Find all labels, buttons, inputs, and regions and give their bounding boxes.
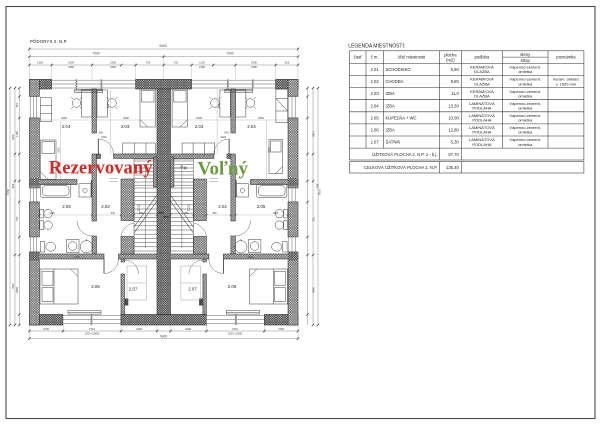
svg-text:časť: časť [354,55,363,60]
svg-text:omietka: omietka [518,81,533,86]
svg-text:2.06: 2.06 [91,284,100,289]
svg-text:2.04: 2.04 [371,103,380,108]
svg-text:12,80: 12,80 [448,128,459,133]
svg-text:2.06: 2.06 [228,284,237,289]
svg-text:2380: 2380 [110,65,116,69]
svg-text:500: 500 [217,104,220,109]
svg-text:Rezervovaný: Rezervovaný [49,158,153,179]
svg-text:3710: 3710 [89,327,95,331]
svg-text:9400: 9400 [160,334,167,338]
svg-text:900: 900 [163,215,168,219]
svg-text:67,70: 67,70 [448,152,459,157]
svg-text:3300: 3300 [123,116,129,120]
svg-text:PODLAHA: PODLAHA [472,118,491,123]
svg-text:poznámka: poznámka [556,55,576,60]
svg-text:950: 950 [16,102,19,107]
svg-text:3710: 3710 [232,327,238,331]
svg-text:2.07: 2.07 [188,287,197,292]
svg-text:1500: 1500 [267,147,270,153]
svg-text:450: 450 [111,212,116,215]
svg-text:3600: 3600 [12,134,15,140]
svg-text:2150: 2150 [278,327,284,331]
svg-text:omietka: omietka [518,106,533,111]
svg-text:1501: 1501 [248,256,254,259]
svg-text:3650: 3650 [311,287,315,293]
svg-text:Voľný: Voľný [198,159,249,180]
svg-text:2380: 2380 [68,65,74,69]
svg-text:2.01: 2.01 [371,67,380,72]
svg-text:PODLAHA: PODLAHA [472,142,491,147]
svg-text:2020: 2020 [101,136,107,139]
svg-text:5750: 5750 [318,189,322,195]
svg-text:950: 950 [11,183,15,188]
svg-text:1850: 1850 [61,116,67,120]
svg-text:2.03: 2.03 [195,124,204,129]
svg-text:DLAŽBA: DLAŽBA [474,81,490,86]
svg-text:omietka: omietka [518,69,533,74]
svg-text:PODLAHA: PODLAHA [472,106,491,111]
svg-text:2.02: 2.02 [101,204,110,209]
svg-text:700: 700 [146,61,151,65]
svg-text:11,0: 11,0 [451,91,460,96]
svg-text:2300: 2300 [136,327,142,331]
svg-text:omietka: omietka [518,130,533,135]
svg-text:13,30: 13,30 [448,103,459,108]
svg-text:2.06: 2.06 [371,128,380,133]
svg-text:ÚŽITKOVÁ PLOCHA 2. N.P. 1 - b.: ÚŽITKOVÁ PLOCHA 2. N.P. 1 - b.j. [372,152,437,157]
svg-text:3300: 3300 [196,116,202,120]
svg-text:5,50: 5,50 [451,67,460,72]
svg-text:1065: 1065 [273,212,279,215]
svg-text:v. 1500 mm: v. 1500 mm [556,81,577,86]
svg-text:2.02: 2.02 [371,79,380,84]
svg-text:2020: 2020 [221,136,227,139]
svg-text:950: 950 [139,212,144,215]
svg-text:2.03: 2.03 [371,91,380,96]
svg-text:3650: 3650 [15,287,19,293]
svg-text:IZBA: IZBA [386,128,396,133]
svg-text:2.05: 2.05 [257,204,266,209]
svg-text:2150: 2150 [43,327,49,331]
svg-text:omietka: omietka [518,118,533,123]
svg-text:9,80: 9,80 [451,79,460,84]
svg-text:1180: 1180 [311,131,315,137]
svg-text:2.04: 2.04 [247,124,256,129]
svg-text:750: 750 [311,217,315,222]
svg-text:1501 (1065): 1501 (1065) [85,332,100,336]
svg-text:135,40: 135,40 [446,165,459,170]
svg-text:2.01: 2.01 [137,205,141,212]
svg-text:1500: 1500 [58,147,61,153]
svg-text:450: 450 [212,212,217,215]
svg-text:950: 950 [184,212,189,215]
svg-text:účel miestnosti: účel miestnosti [398,55,426,60]
svg-text:PODLAHA: PODLAHA [472,130,491,135]
svg-text:DLAŽBA: DLAŽBA [474,69,490,74]
svg-text:2.07: 2.07 [129,287,138,292]
svg-text:7000: 7000 [226,52,233,56]
svg-text:7000: 7000 [92,52,99,56]
svg-text:podlaha: podlaha [474,55,490,60]
svg-text:1501: 1501 [74,256,80,259]
svg-text:2380: 2380 [251,65,257,69]
svg-text:CHODBA: CHODBA [386,79,404,84]
svg-text:2.01: 2.01 [186,205,190,212]
svg-text:1065: 1065 [49,212,55,215]
svg-text:DLAŽBA: DLAŽBA [474,93,490,98]
svg-text:5900: 5900 [12,283,15,289]
svg-text:900: 900 [99,130,104,134]
svg-text:2.04: 2.04 [62,124,71,129]
svg-text:2.07: 2.07 [371,140,380,145]
svg-text:(m2): (m2) [446,58,455,63]
svg-text:5,30: 5,30 [451,140,460,145]
svg-text:925: 925 [285,61,290,65]
svg-text:2300: 2300 [185,327,191,331]
svg-text:2.05: 2.05 [62,204,71,209]
svg-text:omietka: omietka [518,142,533,147]
svg-text:KÚPEĽŇA + WC: KÚPEĽŇA + WC [386,115,417,120]
svg-text:1501 (1065): 1501 (1065) [228,332,243,336]
svg-text:10,00: 10,00 [448,115,459,120]
svg-text:SCHODISKO: SCHODISKO [386,67,412,72]
svg-text:IZBA: IZBA [386,91,396,96]
svg-text:1300: 1300 [37,61,43,65]
svg-text:IZBA: IZBA [386,103,396,108]
svg-text:5750: 5750 [6,189,10,195]
svg-text:2300: 2300 [68,61,74,65]
svg-text:č.m.: č.m. [371,55,379,60]
svg-text:2180: 2180 [199,65,205,69]
svg-text:700: 700 [174,61,179,65]
svg-text:omietka: omietka [518,93,533,98]
svg-text:1850: 1850 [258,116,264,120]
svg-text:CELKOVÁ ÚŽITKOVÁ PLOCHA 2. N.P: CELKOVÁ ÚŽITKOVÁ PLOCHA 2. N.P. [364,165,437,170]
svg-text:ŠATNÍK: ŠATNÍK [386,140,401,145]
svg-text:750: 750 [15,216,19,221]
svg-text:strop: strop [521,58,531,63]
svg-text:900: 900 [158,211,163,215]
svg-text:2.05: 2.05 [371,115,380,120]
svg-text:2300: 2300 [110,61,116,65]
svg-text:steny: steny [520,52,531,57]
svg-text:900: 900 [224,130,229,134]
svg-text:9400: 9400 [159,44,167,48]
svg-text:1135: 1135 [199,61,205,65]
svg-text:2.02: 2.02 [218,204,227,209]
svg-text:2300: 2300 [251,61,257,65]
svg-text:LEGENDA MIESTNOSTÍ:: LEGENDA MIESTNOSTÍ: [348,42,405,49]
svg-text:PÔDORYS 2. N.P.: PÔDORYS 2. N.P. [30,39,67,44]
svg-text:950: 950 [316,184,320,189]
svg-text:500: 500 [107,103,110,108]
svg-text:1180: 1180 [15,131,19,137]
svg-text:2.03: 2.03 [121,124,130,129]
